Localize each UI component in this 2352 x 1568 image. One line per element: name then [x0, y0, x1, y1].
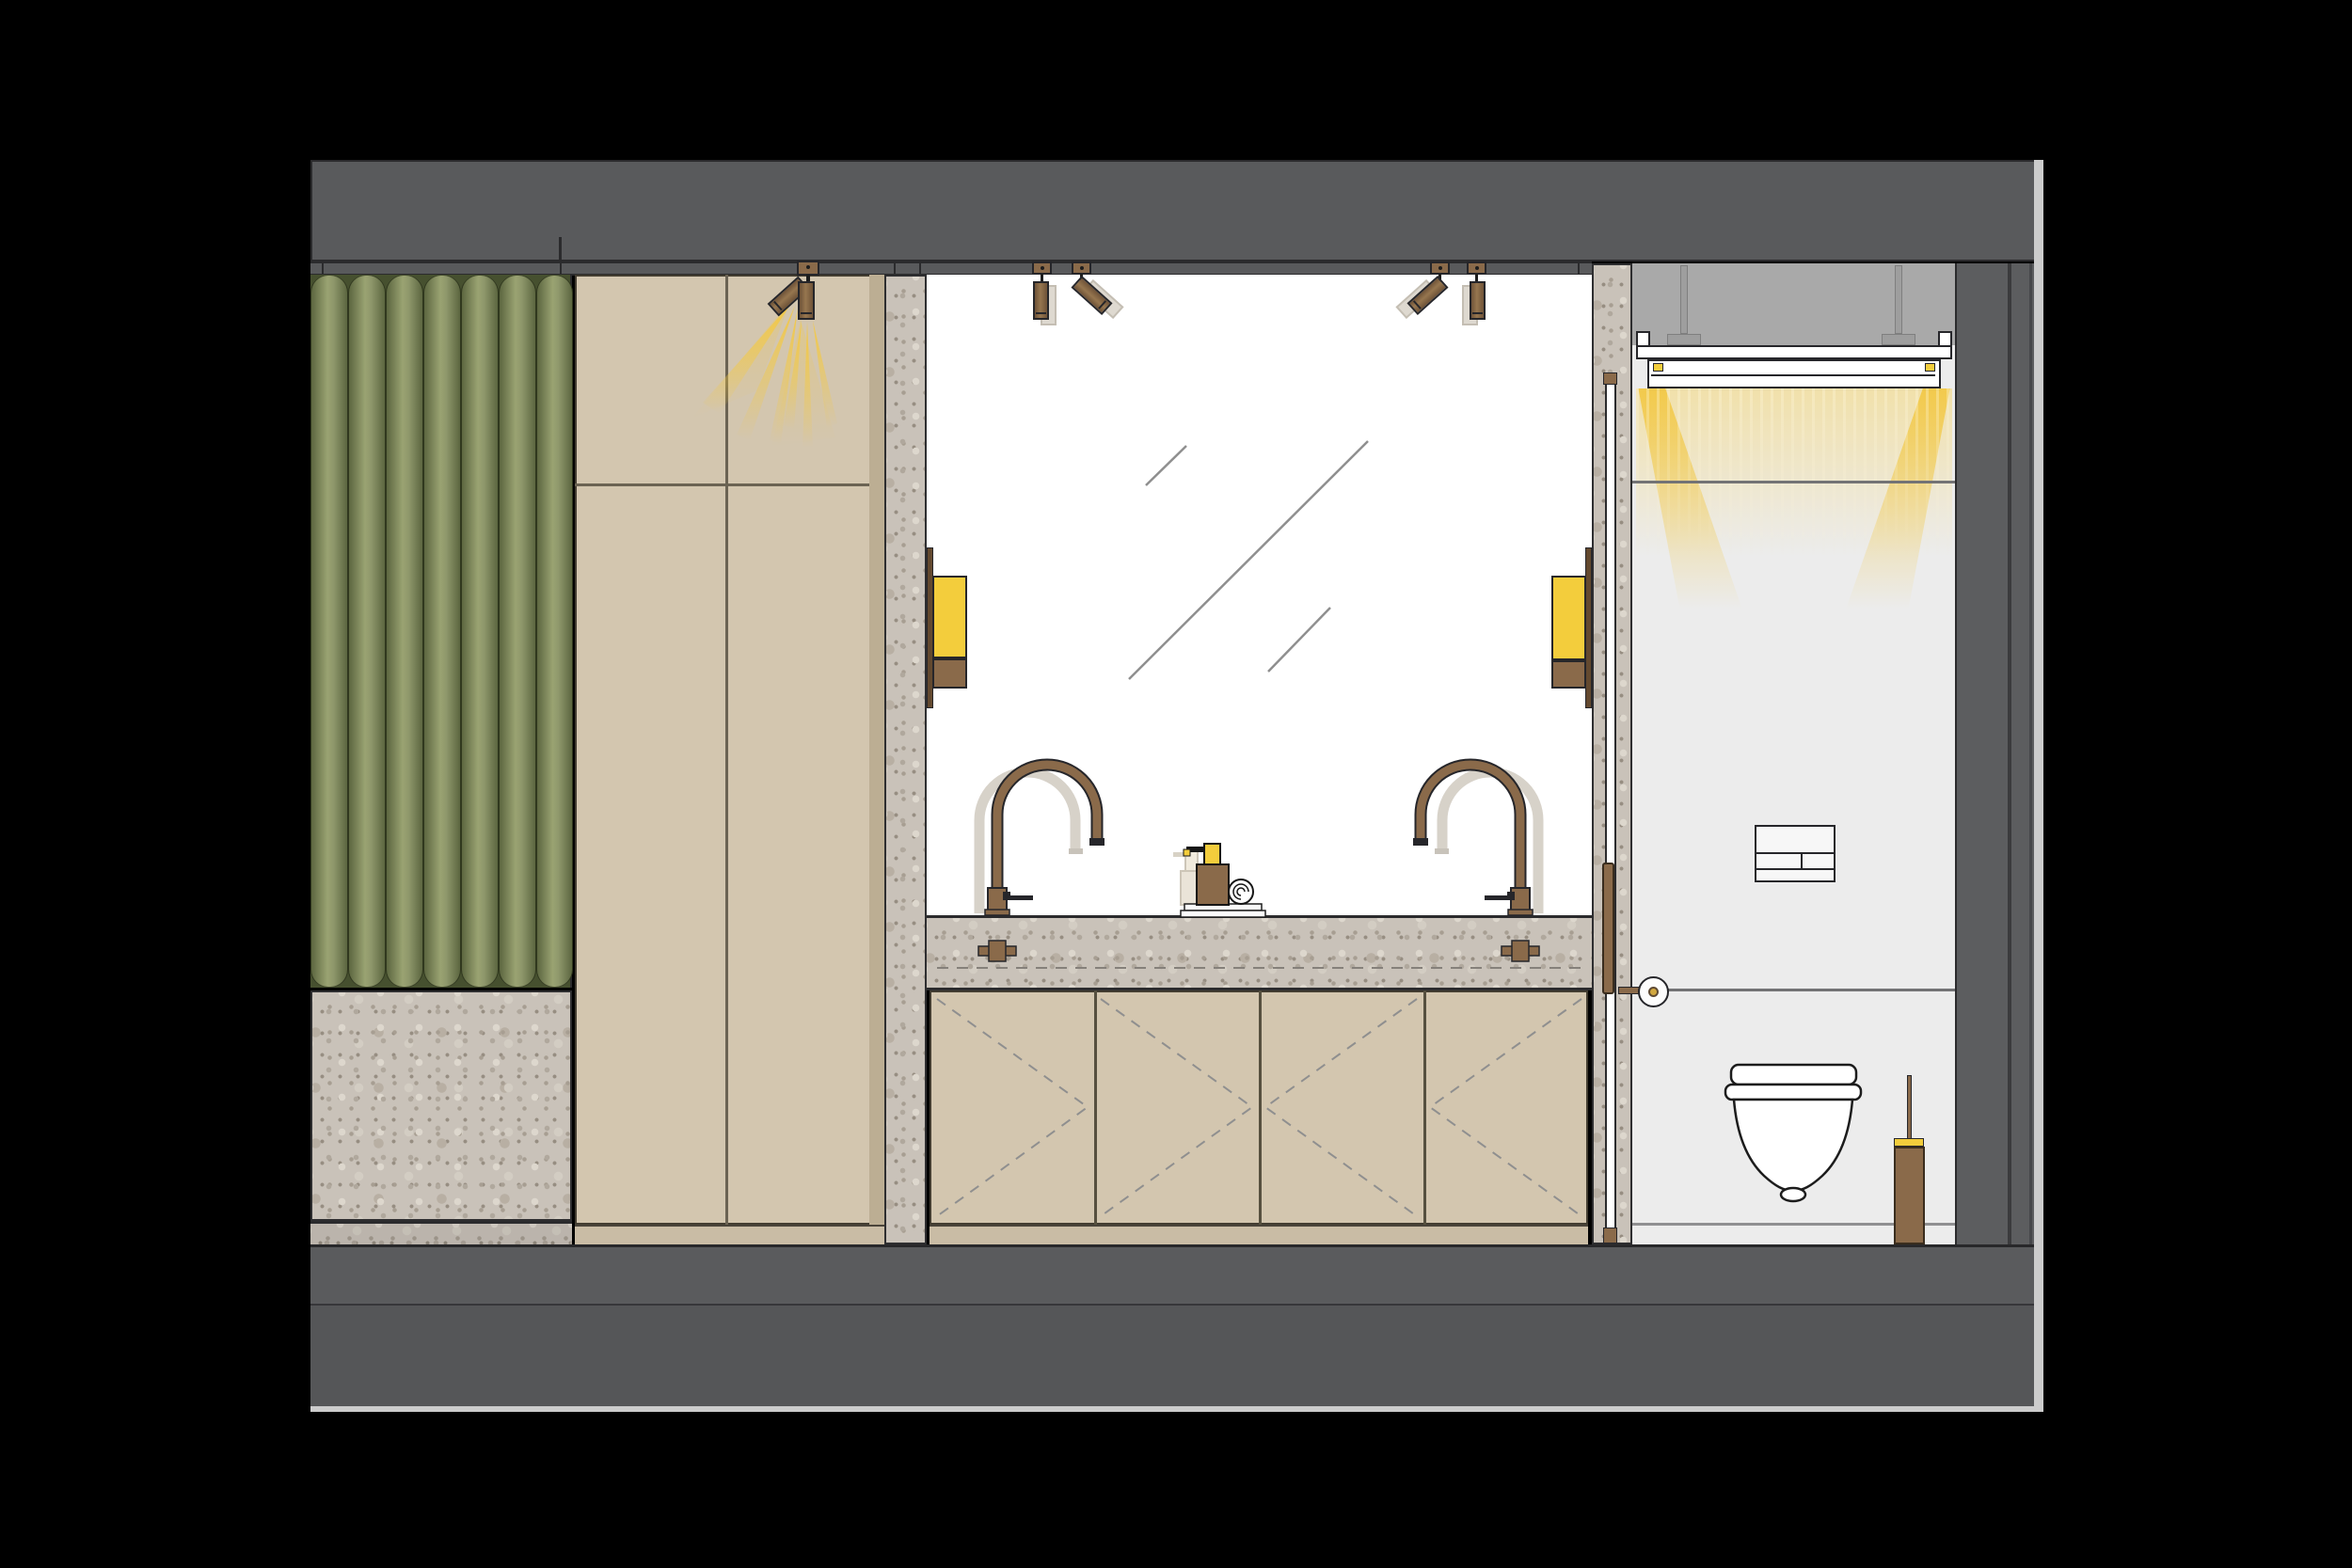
spotlight-mount: [1467, 261, 1486, 275]
curtain-pleat: [348, 275, 386, 988]
curtain-pleat: [499, 275, 536, 988]
wardrobe-plinth: [575, 1225, 884, 1244]
ceiling-hanger-foot: [1882, 334, 1915, 345]
elevation-drawing-canvas: [0, 0, 2352, 1568]
toilet-brush-holder: [1894, 1147, 1925, 1244]
ceiling-hanger: [1680, 265, 1688, 334]
track-joint: [894, 261, 896, 276]
flush-plate: [1755, 825, 1836, 882]
vanity-plinth: [930, 1225, 1588, 1244]
sconce-backplate-right: [1585, 547, 1592, 708]
wc-ceiling-board: [1636, 345, 1952, 359]
drawing-edge-bottom: [310, 1406, 2043, 1412]
cove-light-led: [1925, 363, 1935, 372]
sconce-base-left: [932, 658, 967, 689]
vanity-door-joint: [1423, 990, 1426, 1225]
spotlight-head-vertical: [1033, 281, 1049, 320]
cove-light-channel-line: [1651, 374, 1935, 376]
cove-light-led: [1653, 363, 1663, 372]
spotlight-head-vertical: [1470, 281, 1486, 320]
vanity-door-joint: [1259, 990, 1262, 1225]
stone-bench-skirting: [310, 1221, 572, 1244]
toilet-brush-handle: [1907, 1075, 1912, 1141]
wall-section-joint: [2008, 263, 2011, 1244]
curtain-pleat: [423, 275, 461, 988]
countertop: [927, 915, 1592, 990]
track-joint: [322, 261, 324, 276]
glow-rays: [1636, 388, 1952, 605]
spotlight-mount: [1430, 261, 1450, 275]
glass-door: [1605, 384, 1616, 1243]
ceiling-hanger: [1895, 265, 1902, 334]
toilet-brush-accent: [1894, 1138, 1924, 1147]
door-top-cap: [1603, 372, 1617, 385]
floor-slab: [310, 1306, 2043, 1406]
spotlight-mount: [1032, 261, 1052, 275]
curtain-pleat: [386, 275, 423, 988]
ceiling-hanger-foot: [1667, 334, 1701, 345]
stone-bench: [310, 990, 572, 1221]
track-joint: [560, 261, 562, 276]
flush-plate-line: [1756, 868, 1834, 870]
spotlight-head-vertical: [798, 281, 815, 320]
stone-pillar-left: [884, 275, 927, 1244]
door-pull-handle: [1602, 863, 1614, 994]
vanity-door-joint: [1094, 990, 1097, 1225]
floor-screed: [310, 1244, 2043, 1306]
spotlight-mount: [797, 261, 819, 276]
ceiling-beam-joint: [559, 237, 562, 261]
wall-joint-upper: [1632, 481, 1955, 483]
cove-light-glow: [1636, 388, 1952, 628]
flush-plate-line: [1756, 852, 1834, 854]
sconce-base-right: [1551, 660, 1586, 689]
cove-light-channel: [1647, 359, 1941, 388]
track-joint: [919, 261, 921, 276]
wardrobe-side-shadow: [869, 275, 884, 1225]
curtain-pleat: [536, 275, 573, 988]
track-joint: [1578, 261, 1580, 276]
wardrobe-joint-horizontal: [575, 483, 884, 486]
curtain-pleat: [310, 275, 348, 988]
flush-plate-divider: [1801, 852, 1803, 870]
door-bottom-cap: [1603, 1227, 1617, 1243]
wardrobe-cabinet: [575, 275, 884, 1225]
sconce-shade-right: [1551, 576, 1586, 660]
door-knob-pin: [1648, 987, 1659, 997]
wall-section-joint: [2029, 263, 2032, 1244]
ceiling-track: [310, 261, 1592, 276]
drawing-edge-right: [2034, 160, 2043, 1411]
wardrobe-joint-vertical: [725, 275, 728, 1225]
sconce-shade-left: [932, 576, 967, 658]
wall-joint-lower: [1632, 989, 1955, 991]
ceiling-beam: [310, 160, 2043, 261]
curtain-pleat: [461, 275, 499, 988]
curtain-panel: [310, 275, 572, 988]
spotlight-mount: [1072, 261, 1091, 275]
mirror: [927, 275, 1592, 915]
